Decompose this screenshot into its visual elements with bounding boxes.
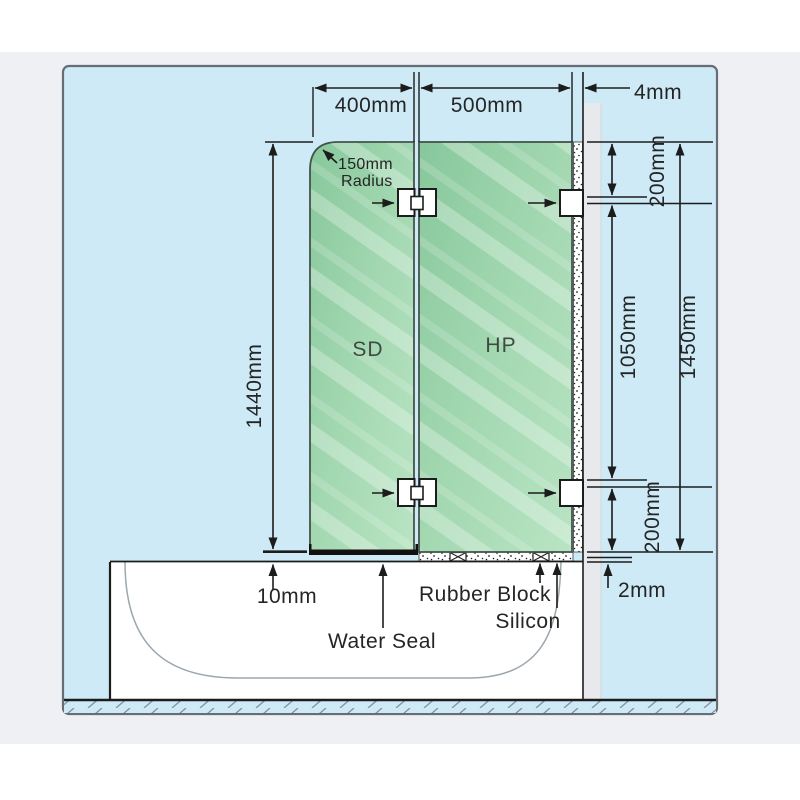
dim-label-200mm-bottom: 200mm [641, 481, 664, 554]
wall-bracket-bottom [560, 480, 583, 506]
dim-label-200mm-top: 200mm [646, 135, 669, 208]
callout-label-silicon: Silicon [495, 610, 560, 633]
radius-label-value: 150mm [338, 156, 393, 173]
rubber-block-left [450, 553, 466, 562]
dim-label-400mm: 400mm [335, 94, 408, 117]
dim-label-4mm: 4mm [634, 81, 682, 104]
dim-label-1440mm: 1440mm [243, 344, 266, 429]
dim-label-1050mm: 1050mm [617, 295, 640, 380]
panel-label-hp: HP [485, 334, 516, 357]
screenshot-stage: 400mm 500mm 4mm 150mm Radius 1440mm 200m… [0, 0, 800, 800]
floor [64, 700, 716, 713]
callout-label-water-seal: Water Seal [328, 630, 436, 653]
wall-bracket-top [560, 190, 583, 216]
panel-label-sd: SD [352, 338, 383, 361]
shower-screen-dimension-diagram: 400mm 500mm 4mm 150mm Radius 1440mm 200m… [0, 0, 800, 800]
rubber-block-right [533, 553, 549, 562]
dim-label-1450mm: 1450mm [677, 295, 700, 380]
dim-label-500mm: 500mm [451, 94, 524, 117]
wall [583, 103, 601, 700]
radius-label-word: Radius [341, 173, 393, 190]
silicon-bed-bottom [419, 552, 573, 561]
dim-label-2mm: 2mm [618, 579, 666, 602]
callout-label-rubber-block: Rubber Block [419, 583, 551, 606]
dim-label-10mm: 10mm [257, 585, 317, 608]
